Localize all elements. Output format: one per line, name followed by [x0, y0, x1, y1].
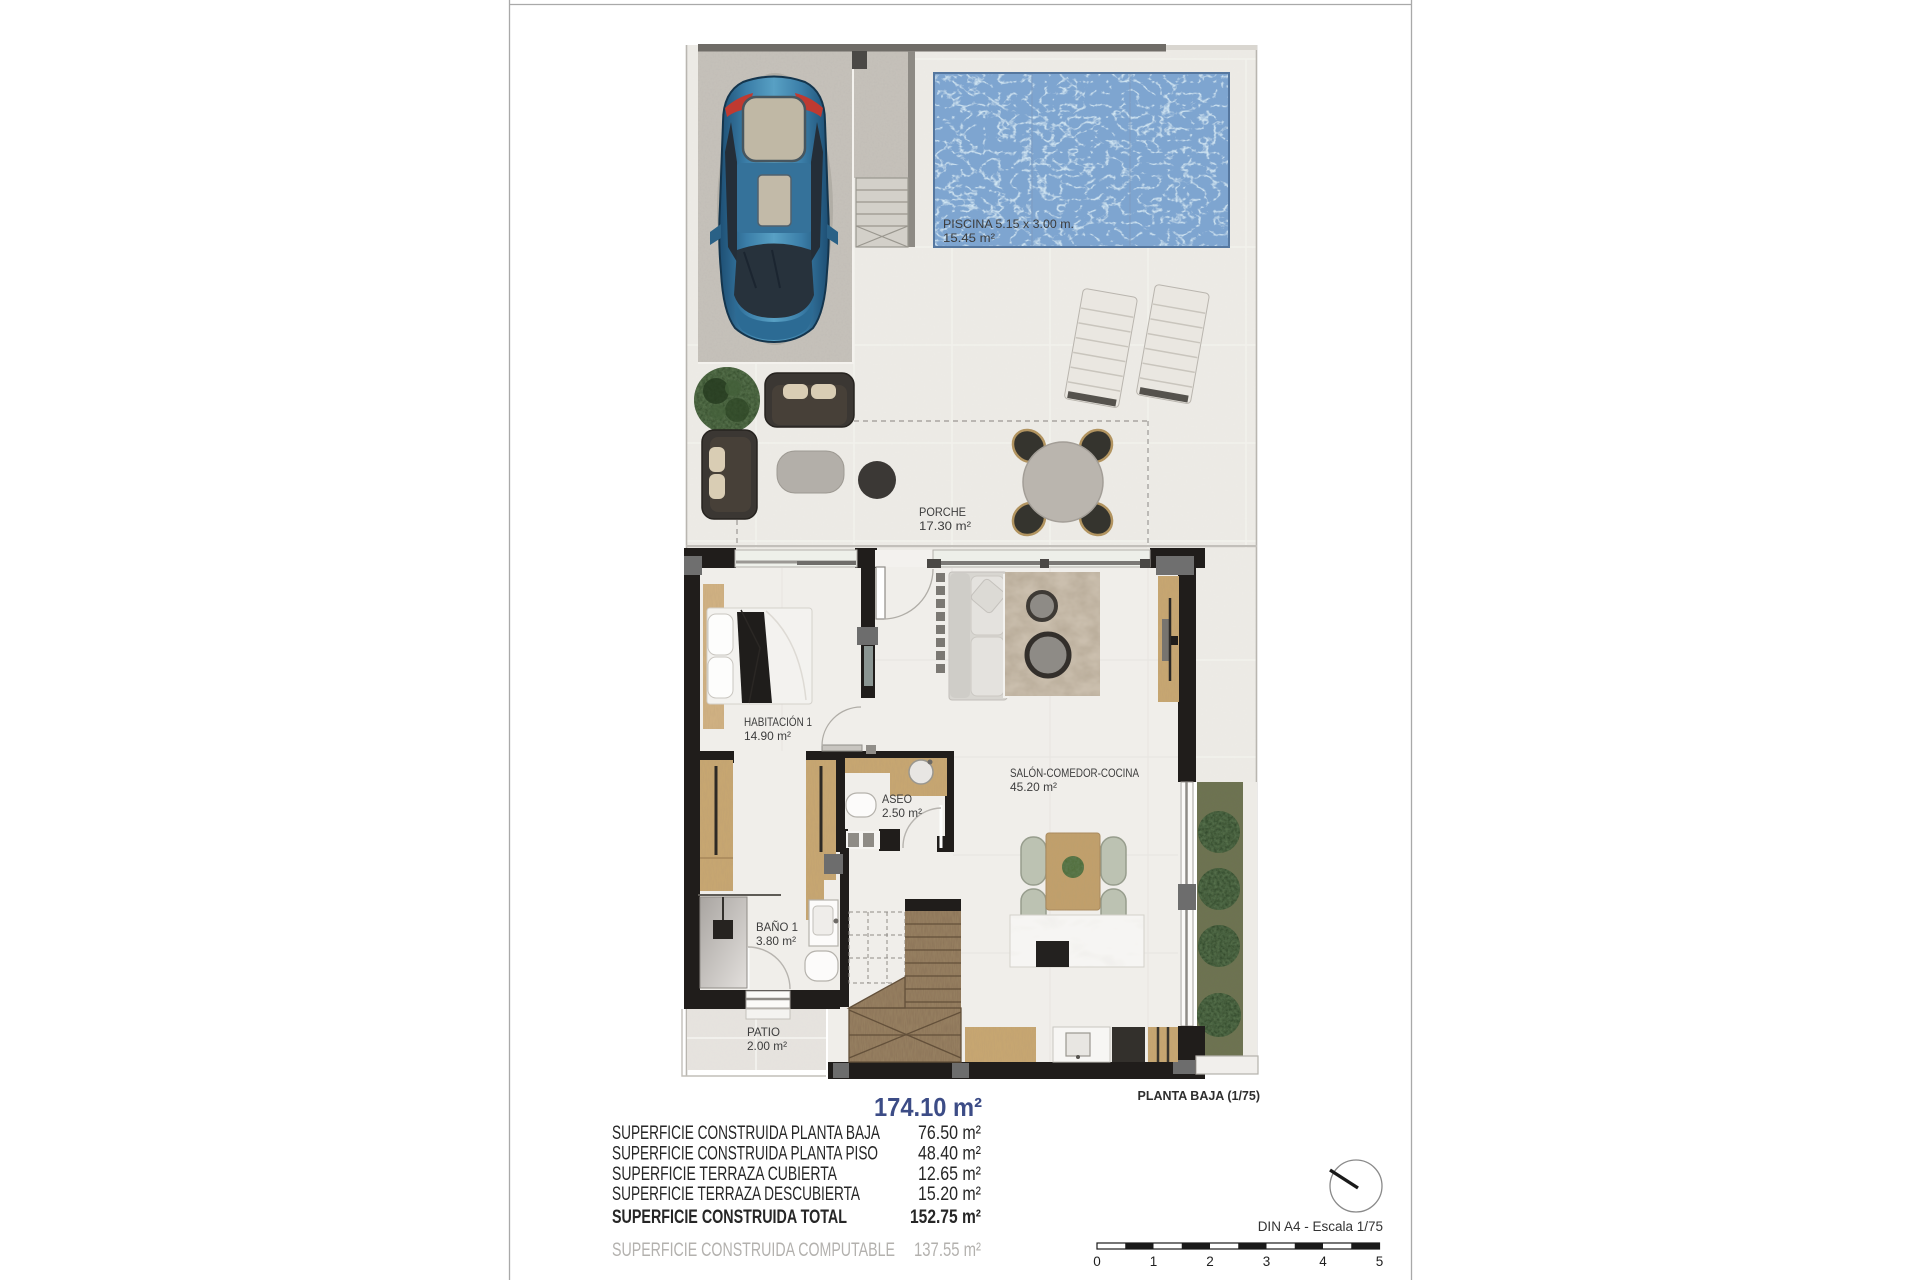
- svg-text:2.00 m²: 2.00 m²: [747, 1039, 787, 1053]
- svg-text:5: 5: [1376, 1254, 1384, 1269]
- svg-text:12.65 m²: 12.65 m²: [918, 1164, 981, 1185]
- svg-text:2: 2: [1206, 1254, 1214, 1269]
- svg-text:SALÓN-COMEDOR-COCINA: SALÓN-COMEDOR-COCINA: [1010, 765, 1139, 780]
- svg-text:PORCHE: PORCHE: [919, 505, 966, 519]
- svg-text:PISCINA 5.15 x 3.00 m.: PISCINA 5.15 x 3.00 m.: [943, 217, 1074, 231]
- svg-text:3: 3: [1263, 1254, 1271, 1269]
- svg-text:ASEO: ASEO: [882, 792, 912, 806]
- svg-text:15.20 m²: 15.20 m²: [918, 1184, 981, 1205]
- svg-text:45.20 m²: 45.20 m²: [1010, 780, 1057, 794]
- svg-text:PATIO: PATIO: [747, 1025, 780, 1039]
- svg-text:2.50 m²: 2.50 m²: [882, 806, 922, 820]
- svg-text:SUPERFICIE CONSTRUIDA PLANTA B: SUPERFICIE CONSTRUIDA PLANTA BAJA: [612, 1123, 880, 1144]
- svg-text:1: 1: [1150, 1254, 1158, 1269]
- svg-text:SUPERFICIE CONSTRUIDA COMPUTAB: SUPERFICIE CONSTRUIDA COMPUTABLE: [612, 1240, 895, 1261]
- svg-text:0: 0: [1093, 1254, 1101, 1269]
- svg-text:HABITACIÓN 1: HABITACIÓN 1: [744, 714, 812, 729]
- svg-text:BAÑO 1: BAÑO 1: [756, 920, 798, 934]
- svg-text:SUPERFICIE CONSTRUIDA TOTAL: SUPERFICIE CONSTRUIDA TOTAL: [612, 1207, 847, 1228]
- svg-text:174.10 m²: 174.10 m²: [874, 1092, 982, 1122]
- svg-text:SUPERFICIE CONSTRUIDA PLANTA P: SUPERFICIE CONSTRUIDA PLANTA PISO: [612, 1144, 878, 1165]
- svg-text:4: 4: [1319, 1254, 1327, 1269]
- svg-text:17.30 m²: 17.30 m²: [919, 519, 971, 533]
- svg-text:137.55 m²: 137.55 m²: [914, 1240, 981, 1261]
- svg-text:3.80 m²: 3.80 m²: [756, 934, 796, 948]
- svg-text:DIN A4 - Escala 1/75: DIN A4 - Escala 1/75: [1258, 1219, 1383, 1234]
- svg-text:76.50 m²: 76.50 m²: [918, 1123, 981, 1144]
- svg-text:SUPERFICIE TERRAZA CUBIERTA: SUPERFICIE TERRAZA CUBIERTA: [612, 1164, 837, 1185]
- svg-text:SUPERFICIE TERRAZA DESCUBIERTA: SUPERFICIE TERRAZA DESCUBIERTA: [612, 1184, 860, 1205]
- svg-text:48.40 m²: 48.40 m²: [918, 1144, 981, 1165]
- svg-text:152.75 m²: 152.75 m²: [910, 1207, 981, 1228]
- svg-text:15.45 m²: 15.45 m²: [943, 231, 995, 245]
- svg-text:14.90 m²: 14.90 m²: [744, 729, 791, 743]
- svg-text:PLANTA BAJA (1/75): PLANTA BAJA (1/75): [1138, 1089, 1260, 1103]
